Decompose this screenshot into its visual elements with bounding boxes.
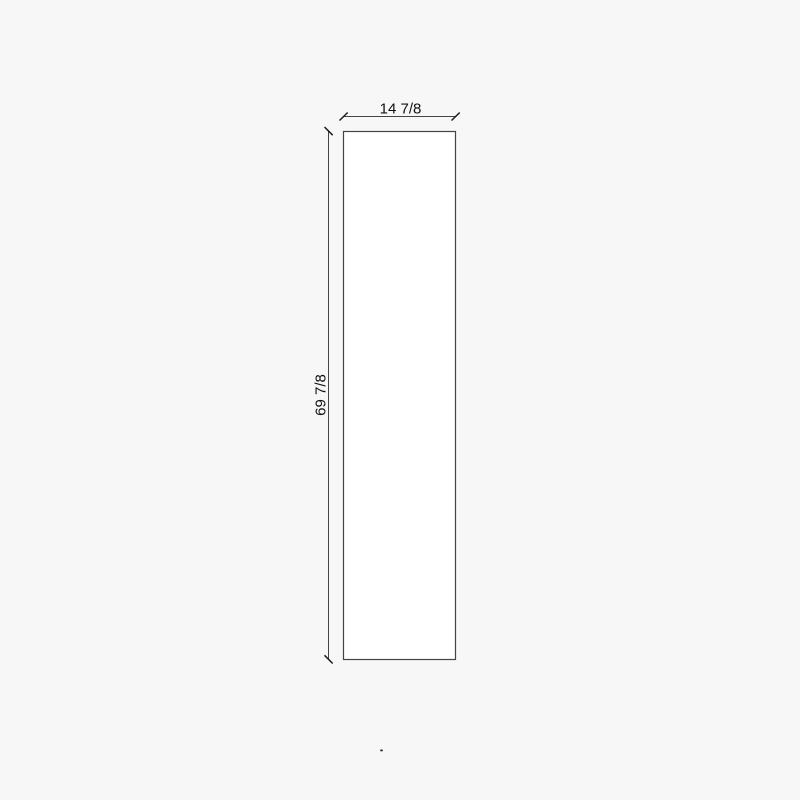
svg-text:69 7/8: 69 7/8 [313,374,330,416]
svg-text:14 7/8: 14 7/8 [380,101,422,118]
